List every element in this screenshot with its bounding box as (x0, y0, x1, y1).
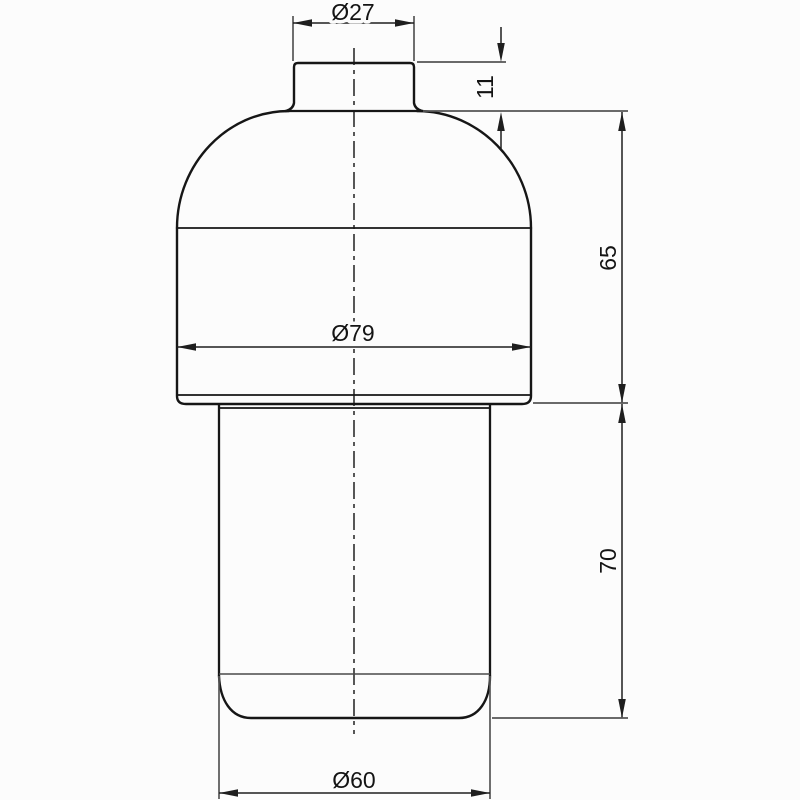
dim-label-body-diameter: Ø79 (331, 320, 374, 346)
dim-bottom-diameter: Ø60 (219, 676, 490, 799)
part-dome-left (177, 111, 289, 228)
technical-drawing: Ø27 11 65 Ø79 (0, 0, 800, 800)
part-body (177, 228, 531, 404)
dim-body-diameter: Ø79 (177, 320, 531, 351)
dim-upper-height: 65 (595, 112, 626, 403)
part-dome-right (417, 111, 531, 228)
dim-label-bottom-diameter: Ø60 (332, 767, 375, 793)
dim-neck-height: 11 (417, 27, 506, 150)
dim-label-lower-height: 70 (595, 548, 621, 574)
drawing-canvas: Ø27 11 65 Ø79 (0, 0, 800, 800)
dim-label-neck-height: 11 (472, 75, 498, 99)
dim-lower-height: 70 (595, 404, 626, 718)
dim-label-upper-height: 65 (595, 245, 621, 271)
dim-label-top-diameter: Ø27 (331, 0, 374, 25)
